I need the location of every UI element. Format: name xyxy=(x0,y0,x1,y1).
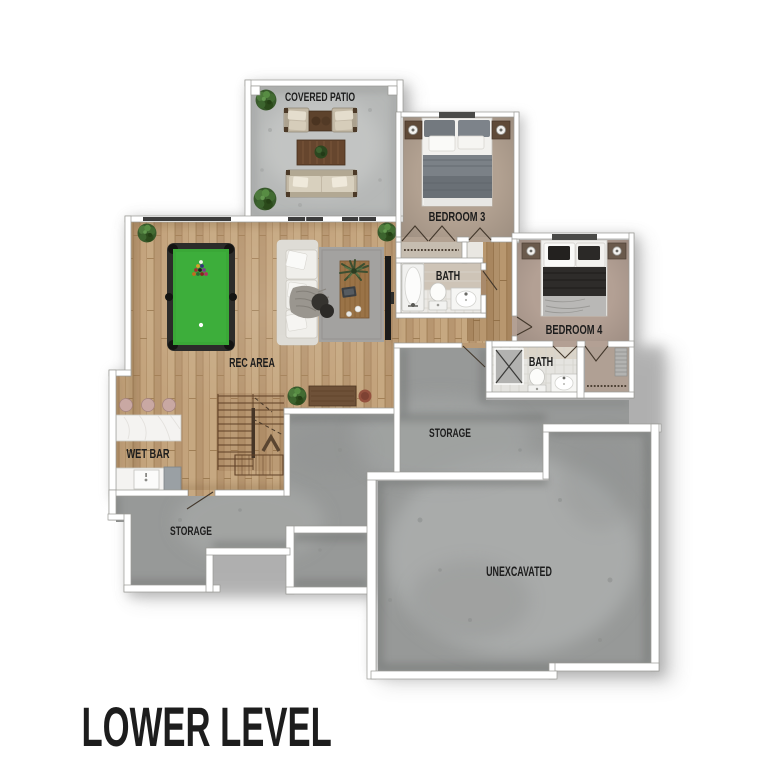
svg-text:BATH: BATH xyxy=(436,270,460,284)
svg-text:BEDROOM 4: BEDROOM 4 xyxy=(546,324,603,338)
svg-text:COVERED PATIO: COVERED PATIO xyxy=(285,92,355,105)
svg-text:BEDROOM 3: BEDROOM 3 xyxy=(429,211,486,225)
svg-text:WET BAR: WET BAR xyxy=(126,448,169,462)
svg-text:REC AREA: REC AREA xyxy=(229,356,275,370)
svg-text:UNEXCAVATED: UNEXCAVATED xyxy=(486,565,552,579)
svg-text:STORAGE: STORAGE xyxy=(170,526,212,539)
svg-text:STORAGE: STORAGE xyxy=(429,428,471,441)
svg-text:LOWER LEVEL: LOWER LEVEL xyxy=(82,695,332,758)
svg-text:BATH: BATH xyxy=(529,356,553,370)
